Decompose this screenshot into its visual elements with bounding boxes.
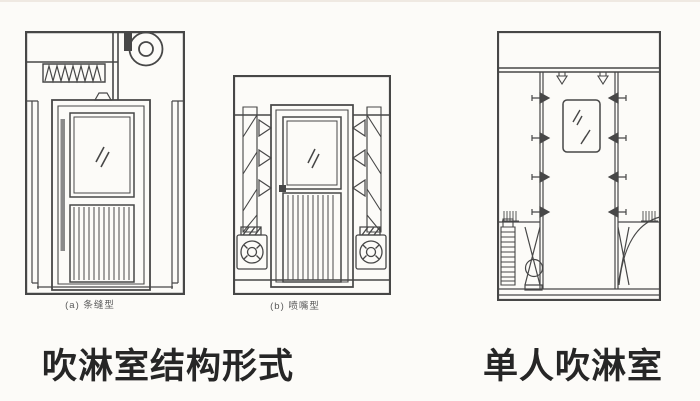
- glass-glare-marks: [308, 149, 319, 168]
- heater-coil-icon: [43, 64, 105, 82]
- page-top-edge: [0, 0, 700, 2]
- door-inner-frame: [58, 106, 144, 284]
- return-air-grid-right: [641, 211, 658, 221]
- slot-grille: [70, 205, 134, 282]
- glass-window: [283, 117, 341, 189]
- hatched-duct-panel-right: [367, 107, 381, 232]
- single-person-air-shower-diagram: [497, 31, 661, 301]
- fan-icon: [130, 33, 163, 66]
- door-latch-block: [279, 185, 286, 192]
- blower-fan-icon-left: [237, 227, 267, 269]
- figure-page: (a) 条缝型: [0, 0, 700, 401]
- blower-fan-icon-right: [356, 227, 386, 269]
- slot-grille: [283, 193, 341, 282]
- glass-glare-marks: [96, 147, 109, 167]
- nozzle-icons-left: [259, 120, 271, 196]
- nozzle-type-air-shower-diagram: [233, 75, 391, 295]
- hatched-duct-panel-left: [243, 107, 257, 232]
- side-return-channel-right: [172, 101, 184, 289]
- door-hinge-strip: [61, 119, 66, 251]
- ceiling-plenum-lines: [498, 68, 660, 72]
- glass-glare-marks: [573, 110, 590, 144]
- filter-coil-icon: [501, 219, 515, 285]
- floor-lines: [498, 289, 660, 295]
- diagram-b-label: (b) 喷嘴型: [270, 298, 320, 312]
- door-outer-frame: [52, 100, 150, 290]
- left-figure-caption: 吹淋室结构形式: [42, 338, 294, 389]
- side-return-channel-left: [26, 101, 38, 289]
- door-closer-bracket: [95, 93, 111, 100]
- glass-window: [70, 113, 134, 197]
- glass-window: [563, 100, 600, 152]
- duct-curve: [619, 217, 660, 285]
- duct-strut-right: [618, 217, 660, 285]
- plenum-divider: [26, 31, 118, 100]
- ceiling-nozzle-icons: [557, 72, 608, 84]
- diagram-a-label: (a) 条缝型: [65, 297, 115, 311]
- slot-type-air-shower-diagram: [25, 31, 185, 295]
- right-figure-caption: 单人吹淋室: [483, 338, 663, 389]
- nozzle-icons-right: [353, 120, 365, 196]
